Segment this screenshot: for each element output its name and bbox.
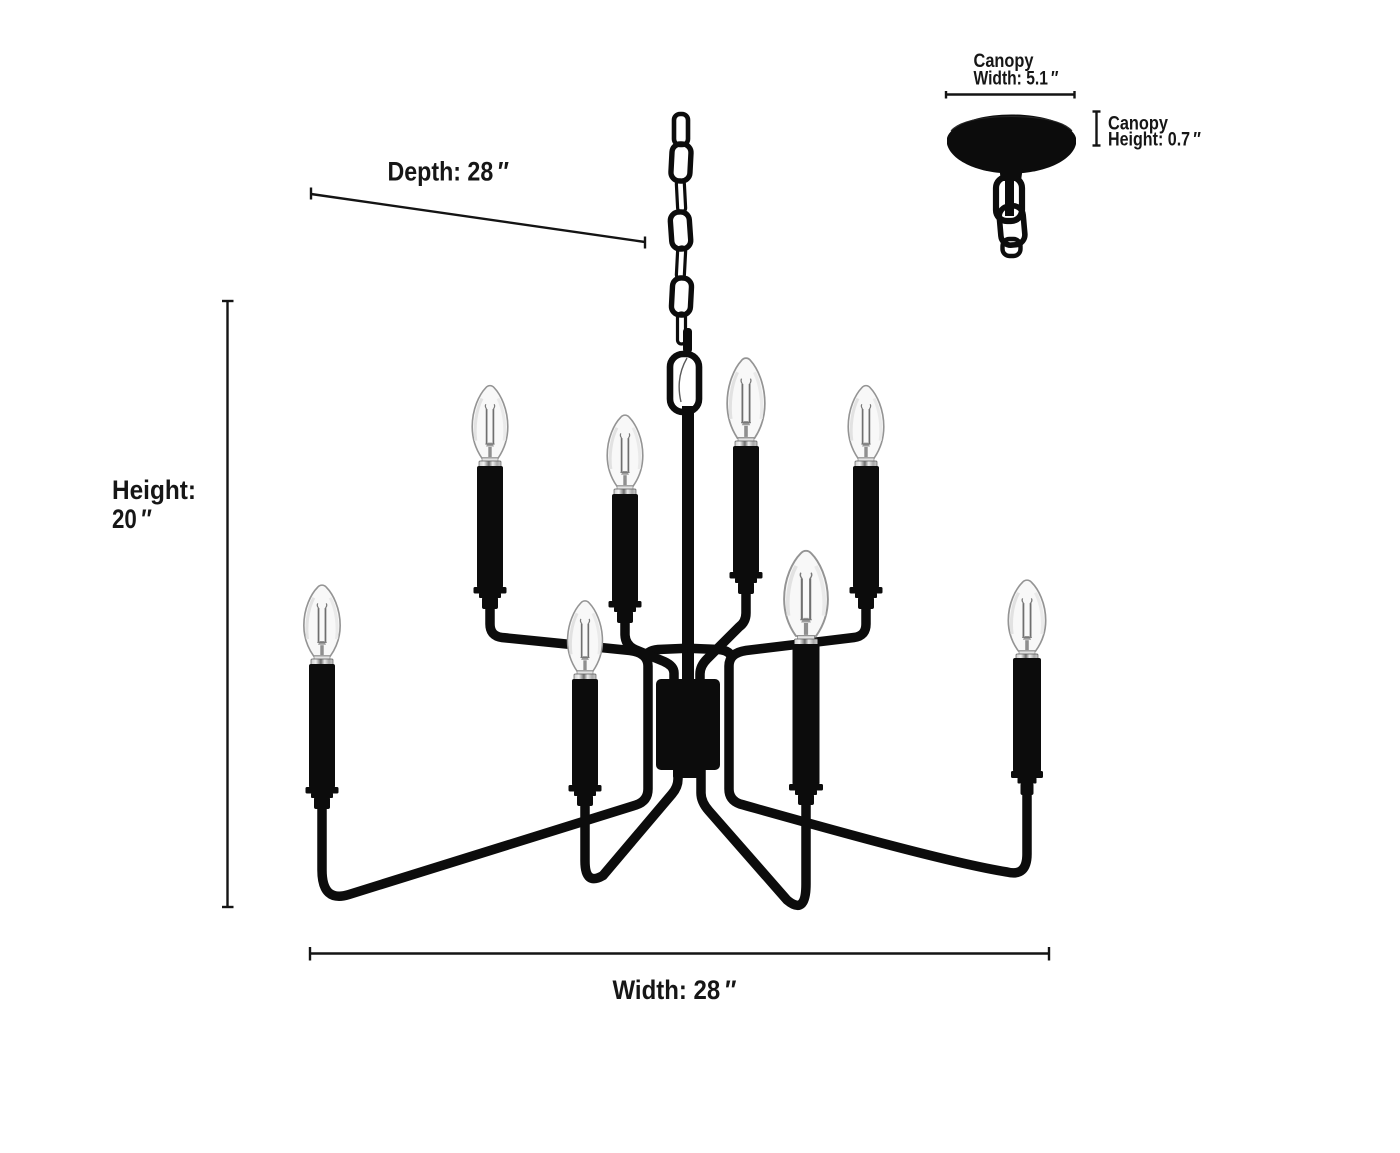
svg-text:20 ″: 20 ″ [112,504,152,534]
svg-text:Height:: Height: [112,475,196,505]
svg-text:Width: 5.1 ″: Width: 5.1 ″ [974,68,1059,90]
svg-text:Depth: 28 ″: Depth: 28 ″ [388,157,510,187]
svg-text:Height: 0.7 ″: Height: 0.7 ″ [1108,129,1201,151]
svg-text:Width: 28 ″: Width: 28 ″ [613,975,737,1005]
